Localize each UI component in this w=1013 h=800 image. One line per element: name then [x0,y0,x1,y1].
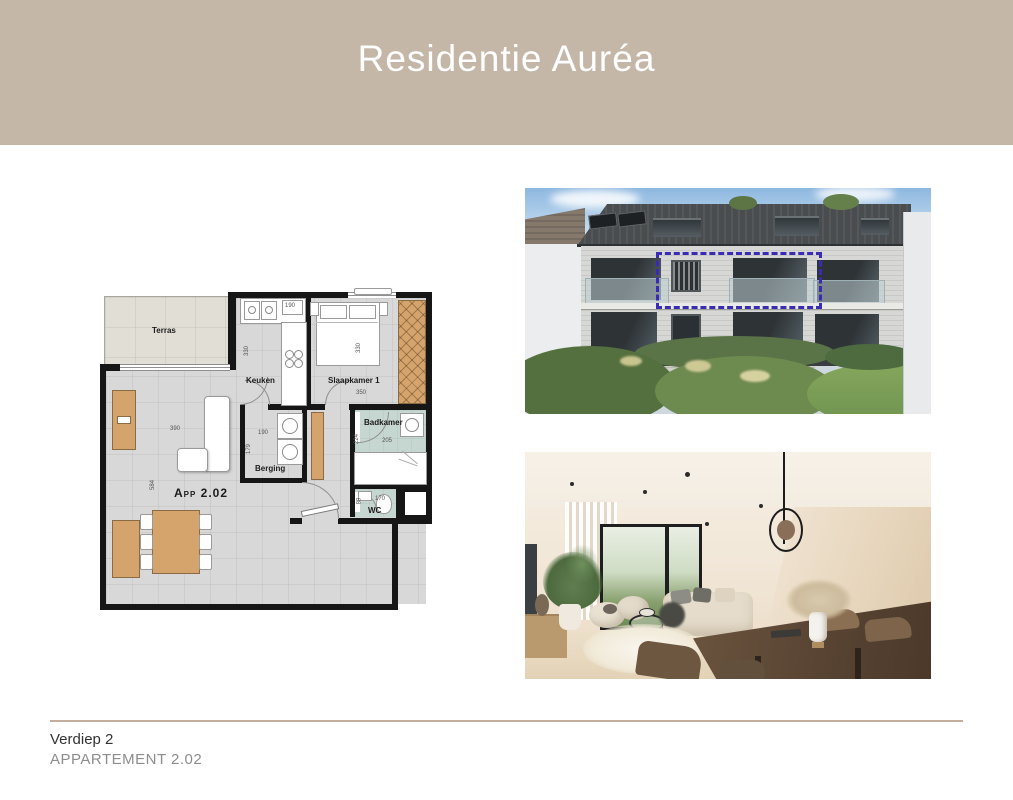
label-slaapkamer: Slaapkamer 1 [328,376,380,385]
dim-living-depth: 584 [150,480,156,490]
dining-table [152,510,200,574]
floor-label: Verdiep 2 [50,731,113,748]
sofa-cushion-2 [692,587,711,603]
terras-sliding-window [120,364,230,371]
spotlight-4 [705,522,709,526]
apartment-highlight-box [656,252,822,309]
stove-burner-1 [285,350,294,359]
footer-divider [50,720,963,722]
wall-hall-top-b [349,404,432,410]
stove-burner-3 [285,359,294,368]
roof-dormer-3 [861,218,889,235]
wardrobe [398,300,426,404]
table-leg-2 [855,648,861,679]
ceiling [525,452,931,507]
spotlight-5 [759,504,763,508]
label-keuken: Keuken [246,376,275,385]
label-wc: WC [368,506,381,515]
window-vent-marker [354,288,392,295]
roof-plant-1 [729,196,757,210]
hall-cabinet [311,412,324,480]
header-band: Residentie Auréa [0,0,1013,145]
pampas-tuft-3 [620,356,642,366]
dim-slaapkamer-width: 350 [356,390,366,396]
balcony-rail-3 [813,280,885,305]
interior-render-image [525,452,931,679]
sofa-throw [659,602,685,628]
label-berging: Berging [255,464,285,473]
label-badkamer: Badkamer [364,418,403,427]
table-vase [809,612,827,642]
nightstand-2 [379,302,388,316]
sink-drain-1 [248,306,256,314]
pillow-1 [320,305,347,319]
dryer-drum [282,444,298,460]
dim-wc-width: 170 [375,496,385,502]
dim-berging-depth: 179 [246,444,252,454]
label-apartment: App 2.02 [174,486,228,500]
dim-slaapkamer-depth: 330 [356,343,362,353]
hedge-right [825,344,915,370]
washer-drum [282,418,298,434]
sofa-cushion-3 [715,588,735,602]
wall-bottom [100,604,398,610]
neighbor-right-wall [903,212,931,414]
spotlight-2 [643,490,647,494]
stove-burner-2 [294,350,303,359]
dim-keuken-width: 190 [285,303,295,309]
exterior-render-image [525,188,931,414]
chair-2 [140,534,153,550]
vase-base [812,642,824,648]
nightstand-1 [310,302,319,316]
chair-1 [140,514,153,530]
wall-bottom-right-vert [392,518,398,610]
pillow-2 [349,305,376,319]
roof-dormer-1 [653,218,701,237]
wall-berging-left [240,404,245,483]
wall-terras-divider [228,292,236,370]
roof-plant-2 [823,194,859,210]
dim-keuken-depth: 330 [244,346,250,356]
shaft-niche [400,487,431,520]
roof-dormer-2 [775,216,819,236]
dining-chair-front-2 [721,660,765,679]
brochure-page: Residentie Auréa [0,0,1013,800]
chair-4 [199,514,212,530]
washbasin-bowl [405,418,419,432]
plant-pot [559,604,581,630]
armchair-cushion [603,604,617,614]
coffee-table-small [639,608,655,617]
sideboard-handle [117,416,131,424]
chair-6 [199,554,212,570]
chair-3 [140,554,153,570]
dim-wc-depth: 89 [356,498,362,505]
vase-decor [535,594,549,616]
pampas-tuft-2 [740,370,770,382]
plant-leaves-2 [565,544,599,584]
lowboard [112,520,140,578]
sink-drain-2 [265,306,273,314]
wall-berging-bottom [240,478,307,483]
dim-living-width: 390 [170,426,180,432]
page-title: Residentie Auréa [0,38,1013,80]
pampas-tuft-1 [685,360,711,372]
pendant-shade [777,520,795,540]
sofa-short-section [177,448,208,472]
chair-5 [199,534,212,550]
apartment-label: APPARTEMENT 2.02 [50,751,202,768]
wall-entry-stub [290,518,302,524]
dim-badkamer-width: 205 [382,438,392,444]
dim-badkamer-depth: 224 [354,434,360,444]
stove-burner-4 [294,359,303,368]
spotlight-1 [685,472,690,477]
duvet-line [316,322,378,323]
label-terras: Terras [152,326,176,335]
dim-berging-width: 190 [258,430,268,436]
spotlight-3 [570,482,574,486]
bathtub [354,452,427,485]
wall-left [100,364,106,610]
floorplan: 190 [100,292,432,614]
